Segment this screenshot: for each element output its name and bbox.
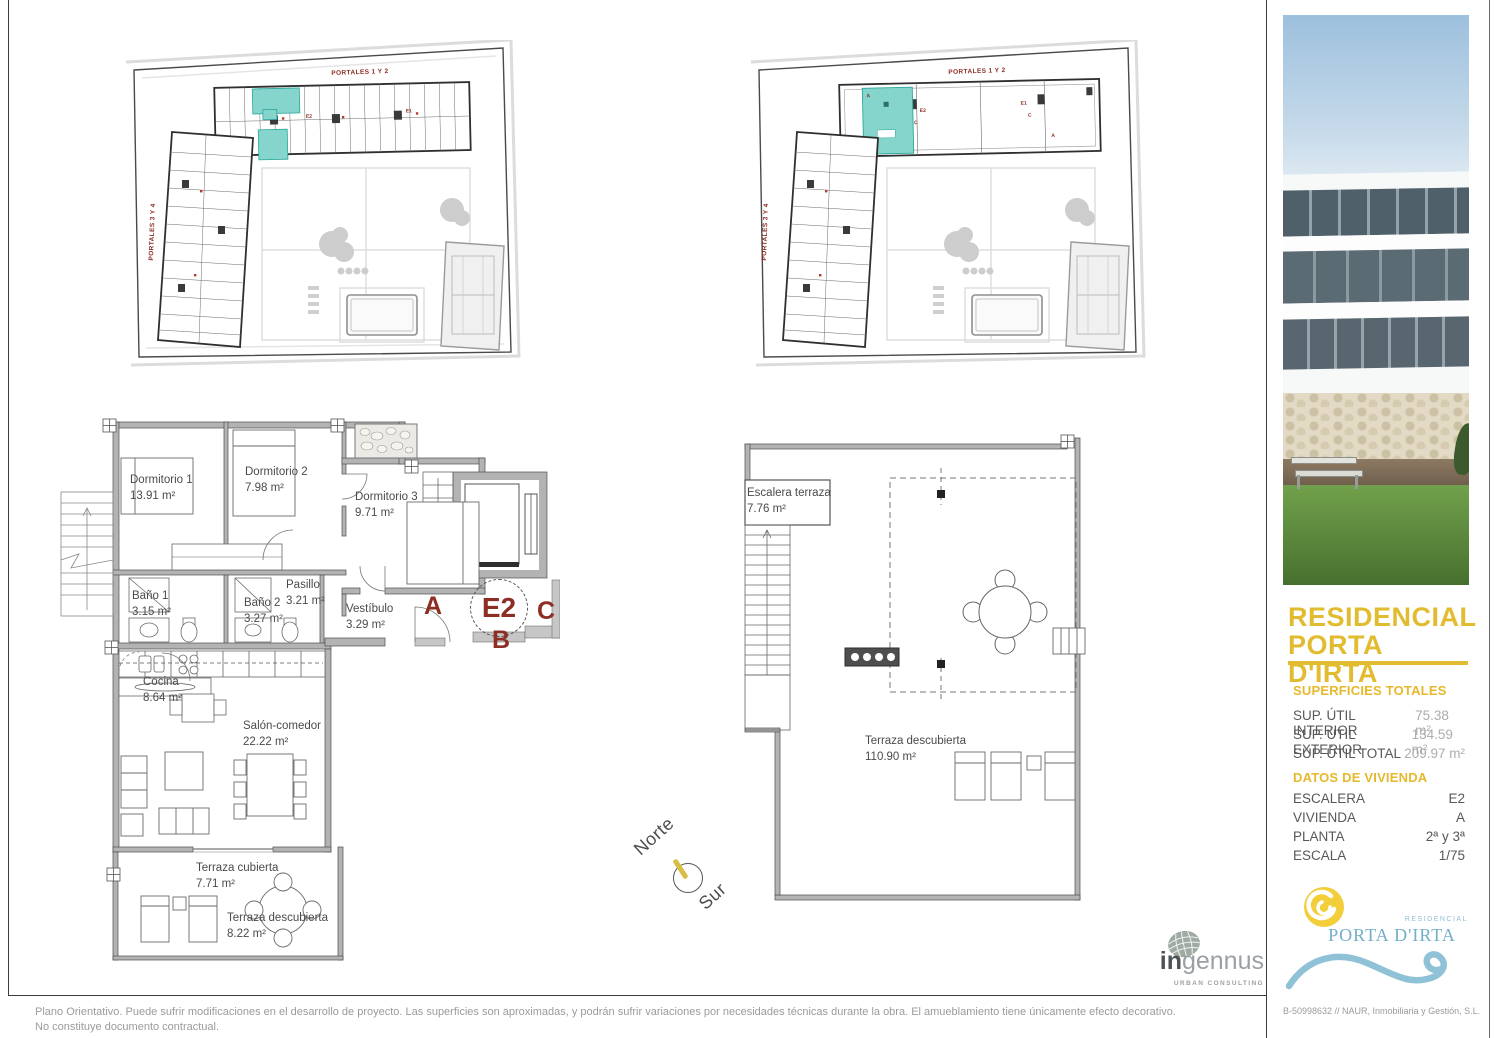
frame-right: [1489, 0, 1490, 1038]
site-plan-1: E2 E1 PORTALES 1 Y 2 PORTALES 3: [120, 40, 540, 370]
frame-left: [8, 0, 9, 995]
residence-title-line2: PORTA D'IRTA: [1288, 631, 1470, 687]
room-label-pasillo: Pasillo3.21 m²: [286, 577, 325, 609]
room-label-bano-1: Baño 13.15 m²: [132, 588, 171, 620]
unit-mark: E2: [306, 114, 312, 120]
room-label-dormitorio-3: Dormitorio 39.71 m²: [355, 489, 418, 521]
unit-mark: A: [866, 93, 870, 99]
frame-bottom: [8, 995, 1266, 996]
frame-sidebar-divider: [1266, 0, 1267, 1038]
bbq: [845, 648, 899, 666]
room-label-dormitorio-1: Dormitorio 113.91 m²: [130, 472, 193, 504]
dwelling-row-escalera: ESCALERAE2: [1293, 791, 1465, 806]
room-label-terraza-descubierta: Terraza descubierta8.22 m²: [227, 910, 328, 942]
photo-lawn: [1283, 485, 1469, 585]
marker-b: B: [492, 626, 510, 655]
terrace-table: [963, 570, 1047, 654]
marker-a: A: [424, 592, 442, 621]
photo-sky: [1283, 15, 1469, 180]
room-label-terraza-cubierta: Terraza cubierta7.71 m²: [196, 860, 278, 892]
living-room-furniture: [121, 752, 306, 836]
brand-residencial-label: RESIDENCIAL: [1372, 916, 1468, 923]
dwelling-row-vivienda: VIVIENDAA: [1293, 810, 1465, 825]
photo-stone-wall: [1283, 393, 1469, 459]
unit-mark: C: [1028, 112, 1032, 118]
room-label-bano-2: Baño 23.27 m²: [244, 595, 283, 627]
ingennus-wordmark: ingennus: [1152, 948, 1264, 974]
room-label-dormitorio-2: Dormitorio 27.98 m²: [245, 464, 308, 496]
marker-unit-label: E2: [482, 592, 516, 624]
room-label-vestibulo: Vestíbulo3.29 m²: [346, 601, 393, 633]
marker-c: C: [537, 597, 555, 626]
terrace-loungers: [955, 752, 1075, 800]
brand-name-label: PORTA D'IRTA: [1316, 925, 1468, 946]
site-plan-2: A E2 C E1 C A: [745, 40, 1165, 370]
building-left-wing-2: [783, 132, 878, 347]
room-label-cocina: Cocina8.64 m²: [143, 674, 182, 706]
planter: [355, 424, 417, 458]
photo-building: [1283, 171, 1469, 408]
tennis-court-1: [441, 242, 504, 350]
disclaimer-text: Plano Orientativo. Puede sufrir modifica…: [35, 1005, 1185, 1035]
photo-bench: [1291, 457, 1357, 464]
room-label-escalera-terraza: Escalera terraza7.76 m²: [747, 485, 831, 517]
unit-mark: C: [914, 120, 918, 126]
level-marker: [1061, 435, 1074, 448]
compass-north-label: Norte: [630, 813, 679, 860]
residence-title-line1: RESIDENCIAL: [1288, 603, 1470, 631]
terrace-stairs: [745, 525, 790, 730]
room-label-salon-comedor: Salón-comedor22.22 m²: [243, 718, 321, 750]
title-underline: [1288, 661, 1468, 665]
unit-mark: E1: [1021, 101, 1027, 107]
brand-wave-icon: [1285, 948, 1465, 992]
plan-sheet: E2 E1 PORTALES 1 Y 2 PORTALES 3: [0, 0, 1500, 1038]
surfaces-heading: SUPERFICIES TOTALES: [1293, 683, 1468, 698]
unit-mark: E1: [406, 108, 412, 114]
building-left-wing-1: [158, 132, 253, 347]
unit-mark: E2: [920, 108, 926, 114]
dwelling-heading: DATOS DE VIVIENDA: [1293, 770, 1468, 785]
unit-mark: A: [1051, 133, 1055, 139]
exterior-stairs: [61, 492, 113, 616]
pergola-outline: [890, 468, 1076, 702]
room-label-terraza-descubierta-grande: Terraza descubierta110.90 m²: [865, 733, 966, 765]
dwelling-row-escala: ESCALA1/75: [1293, 848, 1465, 863]
sidebar-footer-text: B-50998632 // NAUR, Inmobiliaria y Gesti…: [1283, 1005, 1483, 1017]
building-photo: [1283, 15, 1469, 585]
surface-row-total: SUP. ÚTIL TOTAL209.97 m²: [1293, 746, 1465, 761]
tennis-court-2: [1066, 242, 1129, 350]
residence-title: RESIDENCIAL PORTA D'IRTA: [1288, 603, 1470, 687]
brand-sun-icon: [1302, 885, 1346, 929]
ingennus-tagline: URBAN CONSULTING: [1164, 980, 1264, 987]
dwelling-row-planta: PLANTA2ª y 3ª: [1293, 829, 1465, 844]
